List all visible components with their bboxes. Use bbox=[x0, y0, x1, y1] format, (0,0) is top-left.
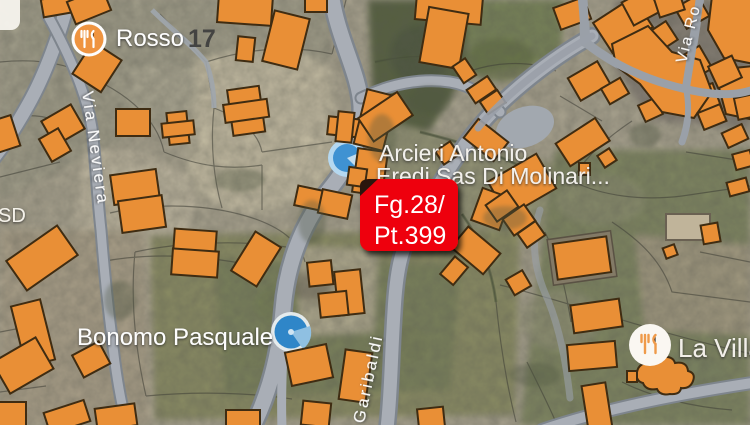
svg-text:La Villa: La Villa bbox=[678, 333, 750, 363]
svg-text:Rosso: Rosso bbox=[116, 25, 184, 52]
svg-text:SD: SD bbox=[0, 205, 26, 227]
svg-text:Bonomo Pasquale: Bonomo Pasquale bbox=[77, 324, 273, 351]
svg-text:Fg.28/: Fg.28/ bbox=[374, 191, 445, 219]
svg-text:17: 17 bbox=[188, 25, 216, 53]
svg-text:Pt.399: Pt.399 bbox=[374, 222, 446, 250]
